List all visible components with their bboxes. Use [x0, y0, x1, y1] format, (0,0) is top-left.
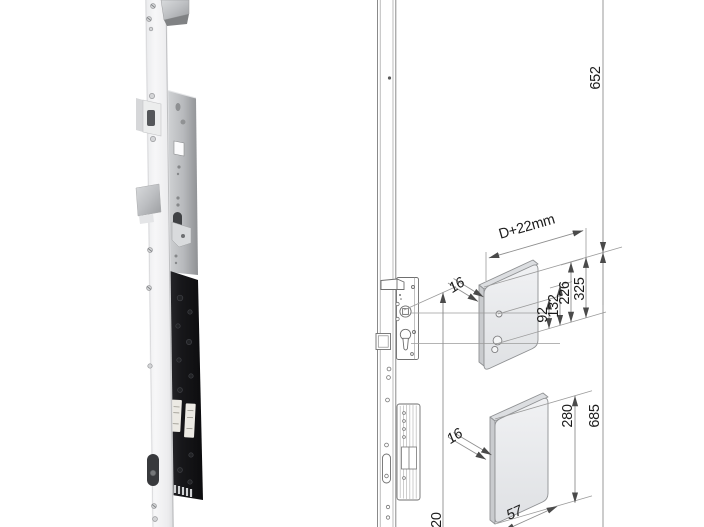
dim-label-020: 020: [429, 512, 445, 527]
drawing-oval-slot: [383, 454, 391, 483]
dim-label-92: 92: [535, 307, 551, 323]
escutcheon-plate-upper: [479, 260, 538, 369]
drawing-faceplate: [378, 0, 396, 527]
photo-striker-block: [161, 0, 189, 26]
dim-label-685: 685: [587, 404, 603, 428]
dim-label-16-lower: 16: [444, 425, 467, 448]
drawing-bottom-gearcase: [383, 398, 421, 519]
dim-label-325: 325: [572, 277, 588, 301]
multipoint-lock-technical-drawing: 652 685 280 325 226 132 92 020 D+22mm 16…: [0, 0, 704, 527]
drawing-main-gearbox: [376, 278, 419, 380]
dim-label-backset: D+22mm: [497, 211, 557, 242]
photo-face-rail: [145, 0, 174, 527]
dim-label-280: 280: [560, 404, 576, 428]
dim-label-652: 652: [588, 66, 604, 90]
drawing-canvas: 652 685 280 325 226 132 92 020 D+22mm 16…: [0, 0, 704, 527]
lock-line-drawing: 652 685 280 325 226 132 92 020 D+22mm 16…: [376, 0, 622, 527]
drawing-latch: [381, 279, 404, 290]
lock-photo: [136, 0, 203, 527]
escutcheon-plate-lower: [490, 393, 548, 524]
photo-gearbox-backplate: [166, 90, 198, 275]
drawing-deadbolt: [376, 334, 391, 350]
